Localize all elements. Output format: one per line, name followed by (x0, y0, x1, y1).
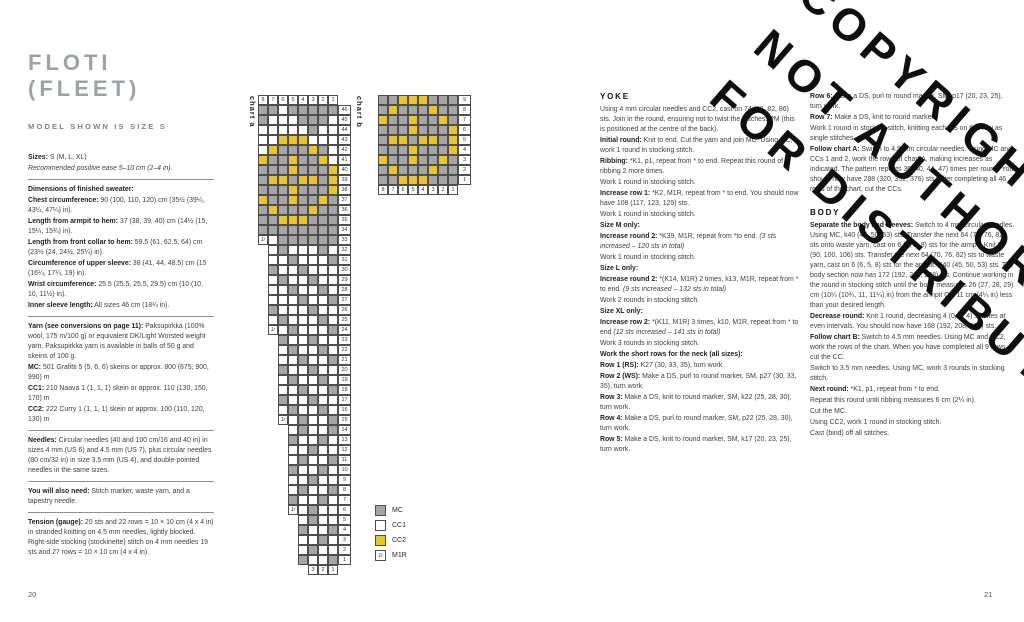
mc-cell (298, 235, 308, 245)
cc2-cell (328, 175, 338, 185)
cc1-cell (298, 375, 308, 385)
mc-cell (278, 395, 288, 405)
mc-cell (318, 535, 328, 545)
text-segment: Length from armpit to hem: (28, 218, 118, 225)
section-divider (28, 316, 214, 317)
cc1-cell (328, 245, 338, 255)
m1r-cell: 1r (258, 235, 268, 245)
cc1-cell (318, 125, 328, 135)
cc1-cell (298, 475, 308, 485)
mc-cell (298, 205, 308, 215)
cc1-cell (318, 305, 328, 315)
text-segment: Work 3 rounds in stocking stitch. (600, 340, 699, 347)
text-segment: Work 1 round in stocking stitch. (600, 211, 696, 218)
cc1-cell (298, 505, 308, 515)
mc-cell (308, 365, 318, 375)
mc-cell (378, 135, 388, 145)
cc1-cell (278, 115, 288, 125)
text-segment: Initial round: (600, 137, 642, 144)
mc-cell (288, 225, 298, 235)
row-number: 36 (338, 205, 351, 215)
chart-row: 1r6 (258, 505, 351, 515)
chart-row: 9 (378, 95, 471, 105)
cc1-cell (328, 505, 338, 515)
row-number: 30 (338, 265, 351, 275)
cc1-cell (288, 485, 298, 495)
cc1-cell (318, 265, 328, 275)
chart-row: 17 (258, 395, 351, 405)
cc2-cell (388, 105, 398, 115)
cc1-cell (328, 125, 338, 135)
text-segment: K27 (30, 33, 35), turn work. (639, 362, 724, 369)
mc-cell (308, 545, 318, 555)
cc1-cell (328, 545, 338, 555)
mc-cell (328, 555, 338, 565)
chart-number-row: 321 (258, 565, 351, 575)
row-number: 4 (458, 145, 471, 155)
mc-cell (278, 235, 288, 245)
paragraph: Recommended positive ease 5–10 cm (2–4 i… (28, 164, 214, 174)
mc-cell (298, 555, 308, 565)
cc1-cell (328, 275, 338, 285)
mc-cell (388, 145, 398, 155)
cc1-cell (328, 445, 338, 455)
mc-cell (288, 205, 298, 215)
cc1-cell (288, 385, 298, 395)
mc-cell (428, 175, 438, 185)
text-segment: All sizes 46 cm (18¼ in). (93, 302, 170, 309)
chart-row: 29 (258, 275, 351, 285)
mc-cell (328, 295, 338, 305)
chart-row: 34 (258, 225, 351, 235)
text-segment: Cast (bind) off all stitches. (810, 430, 889, 437)
row-number: 45 (338, 115, 351, 125)
chart-row: 12 (258, 445, 351, 455)
cc1-cell (318, 295, 328, 305)
cc1-cell (308, 315, 318, 325)
cc1-cell (318, 425, 328, 435)
paragraph: Dimensions of finished sweater: (28, 185, 214, 195)
paragraph: Size M only: (600, 221, 800, 231)
cc1-cell (288, 395, 298, 405)
mc-cell (318, 285, 328, 295)
mc-cell (438, 105, 448, 115)
cc2-cell (268, 145, 278, 155)
chart-row: 1r33 (258, 235, 351, 245)
mc-cell (278, 365, 288, 375)
mc-cell (298, 225, 308, 235)
chart-row: 1r15 (258, 415, 351, 425)
row-number: 13 (338, 435, 351, 445)
mc-cell (318, 375, 328, 385)
mc-cell (378, 175, 388, 185)
cc1-cell (298, 345, 308, 355)
row-number: 15 (338, 415, 351, 425)
paragraph: Size L only: (600, 264, 800, 274)
row-number: 26 (338, 305, 351, 315)
row-number: 12 (338, 445, 351, 455)
text-segment: S (M, L, XL) (48, 154, 87, 161)
cc1-cell (288, 245, 298, 255)
cc1-cell (298, 335, 308, 345)
mc-cell (278, 335, 288, 345)
mc-cell (278, 195, 288, 205)
cc1-cell (268, 275, 278, 285)
row-number: 33 (338, 235, 351, 245)
mc-cell (298, 415, 308, 425)
column-number: 2 (438, 185, 448, 195)
mc-cell (328, 215, 338, 225)
mc-cell (308, 335, 318, 345)
mc-cell (318, 115, 328, 125)
mc-cell (308, 305, 318, 315)
cc2-cell (448, 145, 458, 155)
cc1-cell (288, 415, 298, 425)
chart-row: 16 (258, 405, 351, 415)
paragraph: Chest circumference: 90 (100, 110, 120) … (28, 196, 214, 216)
text-segment: Row 3: (600, 394, 623, 401)
mc-cell (328, 525, 338, 535)
cc1-cell (318, 505, 328, 515)
chart-row: 32 (258, 245, 351, 255)
mc-cell (268, 155, 278, 165)
cc2-cell (408, 145, 418, 155)
cc1-cell (298, 285, 308, 295)
row-number: 28 (338, 285, 351, 295)
cc1-cell (298, 495, 308, 505)
cc1-cell (328, 365, 338, 375)
chart-row: 5 (258, 515, 351, 525)
legend-label: CC1 (392, 522, 406, 529)
paragraph: Needles: Circular needles (40 and 100 cm… (28, 436, 214, 476)
cc2-cell (418, 175, 428, 185)
text-segment: Wrist circumference: (28, 281, 96, 288)
cc1-cell (308, 405, 318, 415)
cc1-cell (278, 405, 288, 415)
row-number: 44 (338, 125, 351, 135)
row-number: 2 (338, 545, 351, 555)
cc2-cell (298, 135, 308, 145)
cc1-cell (298, 255, 308, 265)
row-number: 43 (338, 135, 351, 145)
chart-row: 42 (258, 145, 351, 155)
chart-a-label: chart a (248, 96, 257, 128)
cc1-cell (318, 525, 328, 535)
text-segment: (12 sts increased – 141 sts in total) (613, 329, 720, 336)
cc2-cell (408, 125, 418, 135)
text-segment: Decrease round: (810, 313, 864, 320)
column-number: 6 (278, 95, 288, 105)
paragraph: Row 4: Make a DS, purl to round marker, … (600, 414, 800, 434)
mc-cell (278, 145, 288, 155)
mc-cell (268, 305, 278, 315)
mc-cell (388, 155, 398, 165)
cc1-cell (268, 235, 278, 245)
mc-cell (288, 105, 298, 115)
cc1-cell (318, 455, 328, 465)
mc-cell (318, 345, 328, 355)
mc-cell (308, 445, 318, 455)
text-segment: Row 5: (600, 436, 623, 443)
mc-cell (328, 105, 338, 115)
row-number: 7 (458, 115, 471, 125)
row-number: 40 (338, 165, 351, 175)
row-number: 38 (338, 185, 351, 195)
mc-cell (318, 175, 328, 185)
chart-row: 1 (378, 175, 471, 185)
row-number: 4 (338, 525, 351, 535)
mc-cell (428, 95, 438, 105)
mc-cell (298, 425, 308, 435)
column-number: 3 (428, 185, 438, 195)
legend-swatch-m1r: 1r (375, 550, 386, 561)
paragraph: Work 1 round in stocking stitch. (600, 253, 800, 263)
mc-cell (308, 125, 318, 135)
mc-cell (388, 115, 398, 125)
cc1-cell (328, 305, 338, 315)
mc-cell (318, 225, 328, 235)
cc2-cell (428, 165, 438, 175)
cc1-cell (308, 295, 318, 305)
row-number: 20 (338, 365, 351, 375)
model-size-note: MODEL SHOWN IS SIZE S (28, 122, 214, 131)
legend-item: 1rM1R (375, 550, 407, 561)
cc1-cell (308, 435, 318, 445)
column-number: 3 (308, 565, 318, 575)
column-number: 4 (298, 95, 308, 105)
row-number: 42 (338, 145, 351, 155)
text-segment: *K1, p1, repeat from * to end. (849, 386, 940, 393)
cc1-cell (328, 155, 338, 165)
mc-cell (448, 105, 458, 115)
chart-b-label: chart b (355, 96, 364, 128)
legend-item: CC2 (375, 535, 407, 546)
paragraph: Row 3: Make a DS, knit to round marker, … (600, 393, 800, 413)
cc1-cell (278, 285, 288, 295)
cc1-cell (328, 145, 338, 155)
column-number: 6 (398, 185, 408, 195)
mc-cell (418, 105, 428, 115)
text-segment: Work the short rows for the neck (all si… (600, 351, 743, 358)
cc1-cell (308, 495, 318, 505)
paragraph: Inner sleeve length: All sizes 46 cm (18… (28, 301, 214, 311)
cc2-cell (388, 135, 398, 145)
cc1-cell (308, 385, 318, 395)
mc-cell (298, 355, 308, 365)
mc-cell (328, 235, 338, 245)
chart-row: 7 (258, 495, 351, 505)
mc-cell (448, 175, 458, 185)
chart-row: 23 (258, 335, 351, 345)
chart-row: 38 (258, 185, 351, 195)
cc1-cell (298, 545, 308, 555)
text-segment: 210 Naava 1 (1, 1, 1) skein or approx. 1… (28, 385, 208, 402)
chart-row: 27 (258, 295, 351, 305)
cc2-cell (268, 205, 278, 215)
chart-row: 31 (258, 255, 351, 265)
text-segment: Increase round 2: (600, 233, 657, 240)
cc1-cell (298, 275, 308, 285)
mc-cell (288, 145, 298, 155)
mc-cell (388, 125, 398, 135)
mc-cell (298, 195, 308, 205)
cc2-cell (308, 175, 318, 185)
cc1-cell (288, 365, 298, 375)
cc1-cell (318, 485, 328, 495)
mc-cell (308, 275, 318, 285)
cc1-cell (298, 395, 308, 405)
cc1-cell (288, 315, 298, 325)
mc-cell (278, 155, 288, 165)
text-segment: Cut the MC. (810, 408, 847, 415)
mc-cell (288, 495, 298, 505)
mc-cell (258, 105, 268, 115)
mc-cell (298, 145, 308, 155)
text-segment: Row 1 (RS): (600, 362, 639, 369)
cc2-cell (428, 135, 438, 145)
mc-cell (308, 185, 318, 195)
mc-cell (408, 135, 418, 145)
row-number: 39 (338, 175, 351, 185)
mc-cell (258, 165, 268, 175)
mc-cell (428, 145, 438, 155)
row-number: 35 (338, 215, 351, 225)
mc-cell (328, 415, 338, 425)
cc1-cell (308, 525, 318, 535)
text-segment: Sizes: (28, 154, 48, 161)
mc-cell (268, 215, 278, 225)
cc1-cell (308, 535, 318, 545)
cc2-cell (308, 205, 318, 215)
book-spread: FLOTI (FLEET) MODEL SHOWN IS SIZE S Size… (0, 0, 1024, 622)
legend-label: MC (392, 507, 403, 514)
chart-row: 13 (258, 435, 351, 445)
cc1-cell (328, 495, 338, 505)
cc1-cell (278, 325, 288, 335)
cc1-cell (308, 415, 318, 425)
mc-cell (298, 185, 308, 195)
cc2-cell (288, 195, 298, 205)
cc1-cell (298, 405, 308, 415)
cc1-cell (288, 445, 298, 455)
text-segment: Inner sleeve length: (28, 302, 93, 309)
cc2-cell (258, 155, 268, 165)
paragraph: Work 3 rounds in stocking stitch. (600, 339, 800, 349)
mc-cell (268, 195, 278, 205)
cc1-cell (268, 255, 278, 265)
paragraph: Yarn (see conversions on page 11): Paksu… (28, 322, 214, 362)
cc1-cell (298, 535, 308, 545)
mc-cell (378, 105, 388, 115)
mc-cell (428, 115, 438, 125)
cc1-cell (308, 425, 318, 435)
cc1-cell (328, 265, 338, 275)
cc1-cell (278, 125, 288, 135)
cc1-cell (258, 145, 268, 155)
cc1-cell (288, 275, 298, 285)
mc-cell (398, 125, 408, 135)
text-segment: (9 sts increased – 132 sts in total) (623, 286, 726, 293)
cc1-cell (268, 295, 278, 305)
row-number: 7 (338, 495, 351, 505)
mc-cell (318, 145, 328, 155)
cc2-cell (378, 115, 388, 125)
mc-cell (298, 385, 308, 395)
mc-cell (298, 105, 308, 115)
chart-row: 30 (258, 265, 351, 275)
paragraph: Cut the MC. (810, 407, 1016, 417)
paragraph: Using CC2, work 1 round in stocking stit… (810, 418, 1016, 428)
cc1-cell (328, 345, 338, 355)
cc2-cell (398, 135, 408, 145)
mc-cell (448, 115, 458, 125)
column-number: 8 (258, 95, 268, 105)
chart-row: 3 (258, 535, 351, 545)
spacer (338, 95, 351, 105)
cc1-cell (288, 355, 298, 365)
mc-cell (418, 125, 428, 135)
cc1-cell (308, 135, 318, 145)
cc1-cell (328, 535, 338, 545)
chart-row: 40 (258, 165, 351, 175)
cc2-cell (448, 125, 458, 135)
cc1-cell (278, 265, 288, 275)
mc-cell (438, 165, 448, 175)
cc1-cell (288, 425, 298, 435)
mc-cell (298, 525, 308, 535)
text-segment: Chest circumference: (28, 197, 98, 204)
cc1-cell (308, 455, 318, 465)
cc1-cell (318, 325, 328, 335)
mc-cell (418, 115, 428, 125)
cc1-cell (288, 115, 298, 125)
mc-cell (308, 165, 318, 175)
mc-cell (428, 125, 438, 135)
text-segment: *K39, M1R, repeat from *to end. (657, 233, 759, 240)
chart-row: 7 (378, 115, 471, 125)
mc-cell (418, 165, 428, 175)
chart-legend: MCCC1CC21rM1R (375, 505, 407, 565)
chart-row: 8 (378, 105, 471, 115)
mc-cell (408, 165, 418, 175)
cc1-cell (318, 385, 328, 395)
chart-row: 1 (258, 555, 351, 565)
chart-row: 36 (258, 205, 351, 215)
cc1-cell (318, 255, 328, 265)
text-segment: Increase row 2: (600, 319, 650, 326)
cc1-cell (328, 115, 338, 125)
paragraph: Tension (gauge): 20 sts and 22 rows = 10… (28, 518, 214, 558)
chart-row: 4 (258, 525, 351, 535)
cc1-cell (278, 305, 288, 315)
row-number: 3 (458, 155, 471, 165)
paragraph: Row 2 (WS): Make a DS, purl to round mar… (600, 372, 800, 392)
paragraph: Row 1 (RS): K27 (30, 33, 35), turn work. (600, 361, 800, 371)
text-segment: Using CC2, work 1 round in stocking stit… (810, 419, 941, 426)
cc1-cell (298, 465, 308, 475)
chart-row: 11 (258, 455, 351, 465)
cc2-cell (408, 95, 418, 105)
row-number: 9 (458, 95, 471, 105)
cc2-cell (298, 215, 308, 225)
cc1-cell (288, 305, 298, 315)
section-divider (28, 179, 214, 180)
text-segment: Size L only: (600, 265, 638, 272)
paragraph: Circumference of upper sleeve: 38 (41, 4… (28, 259, 214, 279)
mc-cell (308, 515, 318, 525)
cc2-cell (258, 195, 268, 205)
mc-cell (288, 325, 298, 335)
